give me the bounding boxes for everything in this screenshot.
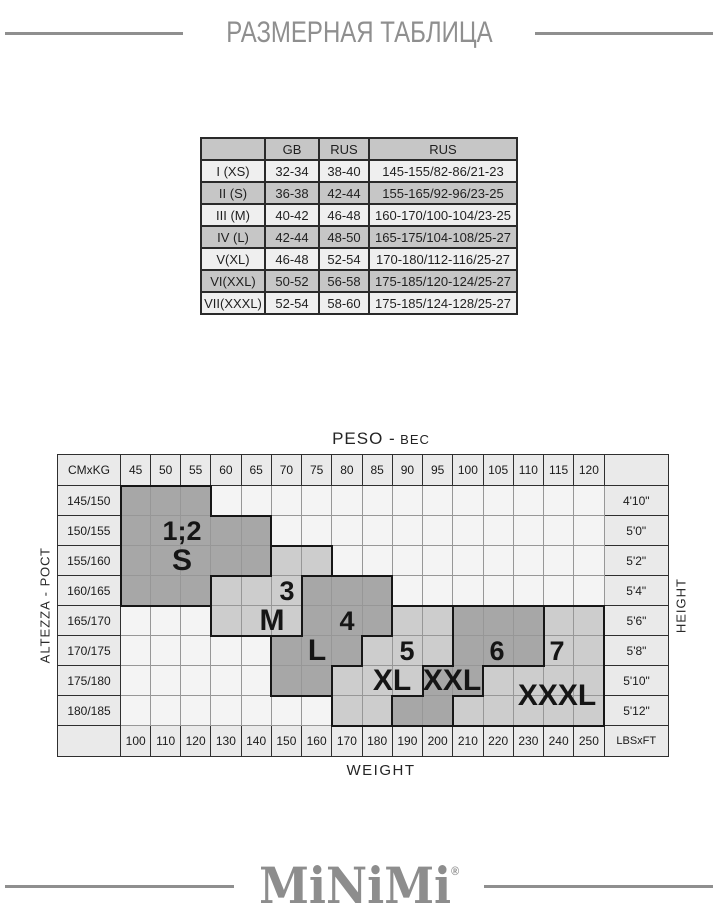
grid-cell-empty [241, 696, 271, 726]
height-ft-cell: 5'0" [604, 516, 669, 546]
grid-cell-empty [332, 546, 362, 576]
grid-cell-size-XXL [513, 636, 543, 666]
grid-cell-size-XXXL [513, 696, 543, 726]
grid-cell-size-L [302, 636, 332, 666]
grid-cell-empty [181, 636, 211, 666]
grid-cell-size-M [241, 606, 271, 636]
grid-cell-size-L [302, 576, 332, 606]
weight-kg-cell: 80 [332, 455, 362, 486]
size-table-header-cell: RUS [369, 138, 517, 160]
grid-cell-size-L [271, 636, 301, 666]
grid-cell-empty [574, 576, 604, 606]
size-table-cell: 52-54 [265, 292, 319, 314]
logo-rule-right [484, 885, 713, 888]
peso-label: PESO - [332, 429, 396, 448]
grid-cell-size-S [181, 486, 211, 516]
grid-cell-size-S [121, 486, 151, 516]
grid-cell-size-XL [332, 696, 362, 726]
size-table-cell: 175-185/124-128/25-27 [369, 292, 517, 314]
grid-cell-empty [181, 696, 211, 726]
grid-cell-empty [574, 546, 604, 576]
grid-cell-empty [513, 486, 543, 516]
grid-cell-empty [121, 696, 151, 726]
size-table-cell: 160-170/100-104/23-25 [369, 204, 517, 226]
grid-cell-empty [211, 666, 241, 696]
height-cm-cell: 170/175 [58, 636, 121, 666]
size-table-header-cell: GB [265, 138, 319, 160]
grid-cell-size-XXXL [453, 696, 483, 726]
grid-cell-empty [271, 696, 301, 726]
grid-cell-size-S [181, 576, 211, 606]
grid-cell-size-XXXL [574, 606, 604, 636]
grid-cell-empty [574, 486, 604, 516]
size-table-cell: 58-60 [319, 292, 369, 314]
grid-cell-size-XL [423, 636, 453, 666]
grid-cell-empty [151, 696, 181, 726]
weight-lbs-cell: 190 [392, 726, 422, 757]
grid-cell-empty [423, 576, 453, 606]
grid-cell-size-XXL [392, 696, 422, 726]
grid-cell-size-XXXL [544, 636, 574, 666]
grid-cell-size-S [181, 516, 211, 546]
size-table-cell: 155-165/92-96/23-25 [369, 182, 517, 204]
grid-cell-empty [423, 546, 453, 576]
chart-row: 175/1805'10" [58, 666, 669, 696]
grid-cell-empty [392, 546, 422, 576]
grid-cell-empty [544, 486, 574, 516]
grid-cell-empty [423, 486, 453, 516]
size-table-row: III (M)40-4246-48160-170/100-104/23-25 [201, 204, 517, 226]
cm-kg-corner-cell: CMxKG [58, 455, 121, 486]
weight-lbs-cell: 140 [241, 726, 271, 757]
size-table-cell: 32-34 [265, 160, 319, 182]
size-table-cell: 56-58 [319, 270, 369, 292]
grid-cell-size-S [121, 546, 151, 576]
size-table-body: I (XS)32-3438-40145-155/82-86/21-23II (S… [201, 160, 517, 314]
grid-cell-size-XXL [483, 636, 513, 666]
chart-row: 145/1504'10" [58, 486, 669, 516]
weight-kg-cell: 120 [574, 455, 604, 486]
grid-cell-size-XXXL [513, 666, 543, 696]
grid-cell-empty [544, 516, 574, 546]
brand-logo: MiNiMi® [259, 861, 459, 911]
grid-cell-empty [453, 516, 483, 546]
grid-cell-empty [121, 606, 151, 636]
size-table-row: II (S)36-3842-44155-165/92-96/23-25 [201, 182, 517, 204]
weight-lbs-cell: 110 [151, 726, 181, 757]
grid-cell-size-XL [362, 636, 392, 666]
height-cm-cell: 155/160 [58, 546, 121, 576]
chart-row: 170/1755'8" [58, 636, 669, 666]
grid-cell-empty [211, 636, 241, 666]
grid-cell-empty [121, 666, 151, 696]
size-table-cell: I (XS) [201, 160, 265, 182]
weight-lbs-cell: 130 [211, 726, 241, 757]
weight-kg-cell: 50 [151, 455, 181, 486]
grid-cell-size-XL [392, 606, 422, 636]
page-header: РАЗМЕРНАЯ ТАБЛИЦА [0, 0, 718, 50]
grid-cell-size-S [151, 576, 181, 606]
grid-cell-size-XXL [513, 606, 543, 636]
grid-cell-empty [151, 666, 181, 696]
weight-lbs-cell: 200 [423, 726, 453, 757]
grid-cell-size-XXXL [483, 666, 513, 696]
height-cm-cell: 165/170 [58, 606, 121, 636]
grid-cell-empty [513, 546, 543, 576]
grid-cell-size-XL [423, 606, 453, 636]
height-cm-cell: 150/155 [58, 516, 121, 546]
size-table-header-cell: RUS [319, 138, 369, 160]
grid-cell-empty [544, 576, 574, 606]
grid-cell-size-XXXL [544, 606, 574, 636]
grid-cell-size-XXXL [544, 666, 574, 696]
grid-cell-size-L [362, 576, 392, 606]
size-conversion-table: GBRUSRUS I (XS)32-3438-40145-155/82-86/2… [200, 137, 518, 315]
grid-cell-empty [271, 516, 301, 546]
size-table-cell: V(XL) [201, 248, 265, 270]
grid-cell-empty [181, 606, 211, 636]
weight-axis-bottom-label: WEIGHT [141, 762, 621, 779]
chart-grid-table: CMxKG45505560657075808590951001051101151… [57, 454, 669, 757]
size-table-row: I (XS)32-3438-40145-155/82-86/21-23 [201, 160, 517, 182]
blank-corner-cell [58, 726, 121, 757]
size-table-row: VII(XXXL)52-5458-60175-185/124-128/25-27 [201, 292, 517, 314]
height-cm-cell: 145/150 [58, 486, 121, 516]
grid-cell-size-XXXL [574, 696, 604, 726]
grid-cell-size-L [332, 636, 362, 666]
weight-kg-cell: 70 [271, 455, 301, 486]
title-rule-right [535, 32, 713, 35]
grid-cell-empty [574, 516, 604, 546]
grid-cell-size-M [271, 606, 301, 636]
chart-row: 165/1705'6" [58, 606, 669, 636]
weight-kg-cell: 95 [423, 455, 453, 486]
grid-cell-size-XXL [423, 696, 453, 726]
size-table-row: V(XL)46-4852-54170-180/112-116/25-27 [201, 248, 517, 270]
brand-logo-text: MiNiMi [259, 856, 451, 915]
grid-cell-empty [302, 486, 332, 516]
grid-cell-empty [121, 636, 151, 666]
grid-cell-empty [151, 606, 181, 636]
grid-cell-empty [483, 546, 513, 576]
grid-cell-empty [211, 696, 241, 726]
size-table-cell: III (M) [201, 204, 265, 226]
size-table-cell: 48-50 [319, 226, 369, 248]
title-rule-left [5, 32, 183, 35]
chart-row: 160/1655'4" [58, 576, 669, 606]
grid-cell-empty [392, 576, 422, 606]
weight-lbs-cell: 240 [544, 726, 574, 757]
height-ft-cell: 5'12" [604, 696, 669, 726]
size-table-cell: 40-42 [265, 204, 319, 226]
size-table-row: IV (L)42-4448-50165-175/104-108/25-27 [201, 226, 517, 248]
weight-kg-cell: 100 [453, 455, 483, 486]
grid-cell-empty [302, 516, 332, 546]
grid-cell-empty [332, 516, 362, 546]
grid-cell-size-S [121, 576, 151, 606]
height-cm-cell: 180/185 [58, 696, 121, 726]
weight-lbs-cell: 250 [574, 726, 604, 757]
grid-cell-size-S [121, 516, 151, 546]
size-table-cell: 175-185/120-124/25-27 [369, 270, 517, 292]
grid-cell-empty [513, 576, 543, 606]
grid-cell-size-S [241, 516, 271, 546]
grid-cell-size-S [211, 546, 241, 576]
lbs-footer-row: 1001101201301401501601701801902002102202… [58, 726, 669, 757]
size-table-cell: IV (L) [201, 226, 265, 248]
size-table-cell: 42-44 [319, 182, 369, 204]
size-table-cell: II (S) [201, 182, 265, 204]
weight-kg-cell: 45 [121, 455, 151, 486]
weight-lbs-cell: 160 [302, 726, 332, 757]
chart-row: 150/1555'0" [58, 516, 669, 546]
chart-row: 180/1855'12" [58, 696, 669, 726]
size-table-cell: 46-48 [319, 204, 369, 226]
grid-cell-size-XXXL [574, 666, 604, 696]
grid-cell-empty [453, 546, 483, 576]
weight-lbs-cell: 170 [332, 726, 362, 757]
grid-cell-size-XL [362, 696, 392, 726]
weight-kg-cell: 115 [544, 455, 574, 486]
weight-kg-cell: 75 [302, 455, 332, 486]
grid-cell-size-M [241, 576, 271, 606]
grid-cell-size-XXL [453, 636, 483, 666]
height-cm-cell: 160/165 [58, 576, 121, 606]
height-ft-cell: 5'8" [604, 636, 669, 666]
size-table-cell: 50-52 [265, 270, 319, 292]
weight-kg-cell: 85 [362, 455, 392, 486]
height-axis-right-label: HEIGHT [669, 578, 693, 633]
grid-cell-size-S [181, 546, 211, 576]
grid-cell-size-XXL [453, 666, 483, 696]
chart-grid: CMxKG45505560657075808590951001051101151… [57, 454, 669, 757]
grid-cell-empty [483, 516, 513, 546]
grid-cell-size-S [151, 486, 181, 516]
size-table-cell: 165-175/104-108/25-27 [369, 226, 517, 248]
grid-cell-size-M [302, 546, 332, 576]
weight-lbs-cell: 100 [121, 726, 151, 757]
grid-cell-size-S [151, 516, 181, 546]
grid-cell-size-M [211, 576, 241, 606]
grid-cell-size-XL [392, 666, 422, 696]
grid-cell-empty [241, 666, 271, 696]
grid-cell-size-XXL [483, 606, 513, 636]
brand-footer: MiNiMi® [0, 861, 718, 911]
weight-lbs-cell: 230 [513, 726, 543, 757]
weight-lbs-cell: 180 [362, 726, 392, 757]
grid-cell-empty [271, 486, 301, 516]
grid-cell-size-L [362, 606, 392, 636]
ves-label: ВЕС [400, 432, 430, 447]
height-cm-cell: 175/180 [58, 666, 121, 696]
grid-cell-size-S [151, 546, 181, 576]
grid-cell-size-L [332, 576, 362, 606]
page-title: РАЗМЕРНАЯ ТАБЛИЦА [226, 16, 492, 50]
grid-cell-empty [241, 636, 271, 666]
size-table-cell: 36-38 [265, 182, 319, 204]
grid-cell-empty [151, 636, 181, 666]
kg-header-row: CMxKG45505560657075808590951001051101151… [58, 455, 669, 486]
grid-cell-size-L [302, 666, 332, 696]
blank-corner-cell [604, 455, 669, 486]
chart-row: 155/1605'2" [58, 546, 669, 576]
grid-cell-empty [362, 546, 392, 576]
weight-lbs-cell: 120 [181, 726, 211, 757]
grid-cell-empty [453, 486, 483, 516]
logo-rule-left [5, 885, 234, 888]
weight-axis-top-label: PESO - ВЕС [141, 429, 621, 449]
height-ft-cell: 5'6" [604, 606, 669, 636]
size-table-cell: 46-48 [265, 248, 319, 270]
grid-cell-size-XL [392, 636, 422, 666]
grid-cell-empty [362, 486, 392, 516]
size-table-header-row: GBRUSRUS [201, 138, 517, 160]
height-ft-cell: 4'10" [604, 486, 669, 516]
size-table-cell: 170-180/112-116/25-27 [369, 248, 517, 270]
grid-cell-size-M [271, 576, 301, 606]
grid-cell-empty [483, 576, 513, 606]
weight-lbs-cell: 150 [271, 726, 301, 757]
weight-height-chart: PESO - ВЕС ALTEZZA - РОСТ CMxKG455055606… [0, 429, 718, 779]
weight-kg-cell: 105 [483, 455, 513, 486]
weight-kg-cell: 110 [513, 455, 543, 486]
size-table-cell: VI(XXL) [201, 270, 265, 292]
size-table-head: GBRUSRUS [201, 138, 517, 160]
lbs-ft-corner-cell: LBSxFT [604, 726, 669, 757]
grid-cell-empty [423, 516, 453, 546]
grid-cell-empty [392, 516, 422, 546]
grid-cell-empty [362, 516, 392, 546]
grid-cell-size-XXXL [544, 696, 574, 726]
grid-cell-empty [544, 546, 574, 576]
size-table-cell: 52-54 [319, 248, 369, 270]
grid-cell-size-L [332, 606, 362, 636]
weight-lbs-cell: 220 [483, 726, 513, 757]
grid-cell-size-S [241, 546, 271, 576]
weight-kg-cell: 90 [392, 455, 422, 486]
weight-kg-cell: 55 [181, 455, 211, 486]
grid-cell-size-L [271, 666, 301, 696]
grid-cell-size-M [271, 546, 301, 576]
size-table-header-cell [201, 138, 265, 160]
grid-cell-empty [513, 516, 543, 546]
grid-cell-size-M [211, 606, 241, 636]
grid-cell-empty [302, 696, 332, 726]
height-ft-cell: 5'2" [604, 546, 669, 576]
grid-cell-size-XL [332, 666, 362, 696]
size-table-cell: VII(XXXL) [201, 292, 265, 314]
height-ft-cell: 5'10" [604, 666, 669, 696]
height-ft-cell: 5'4" [604, 576, 669, 606]
grid-cell-size-XXXL [574, 636, 604, 666]
grid-cell-empty [181, 666, 211, 696]
grid-cell-empty [241, 486, 271, 516]
height-axis-left-label: ALTEZZA - РОСТ [33, 547, 57, 663]
grid-cell-empty [483, 486, 513, 516]
grid-cell-size-XL [362, 666, 392, 696]
grid-cell-empty [392, 486, 422, 516]
grid-cell-size-XXXL [483, 696, 513, 726]
size-table-row: VI(XXL)50-5256-58175-185/120-124/25-27 [201, 270, 517, 292]
grid-cell-size-XXL [423, 666, 453, 696]
grid-cell-empty [211, 486, 241, 516]
size-table-cell: 38-40 [319, 160, 369, 182]
size-table-cell: 145-155/82-86/21-23 [369, 160, 517, 182]
grid-cell-empty [332, 486, 362, 516]
size-table-cell: 42-44 [265, 226, 319, 248]
weight-lbs-cell: 210 [453, 726, 483, 757]
grid-cell-empty [453, 576, 483, 606]
grid-cell-size-L [302, 606, 332, 636]
grid-cell-size-XXL [453, 606, 483, 636]
trademark-icon: ® [451, 864, 459, 878]
weight-kg-cell: 65 [241, 455, 271, 486]
grid-cell-size-S [211, 516, 241, 546]
weight-kg-cell: 60 [211, 455, 241, 486]
